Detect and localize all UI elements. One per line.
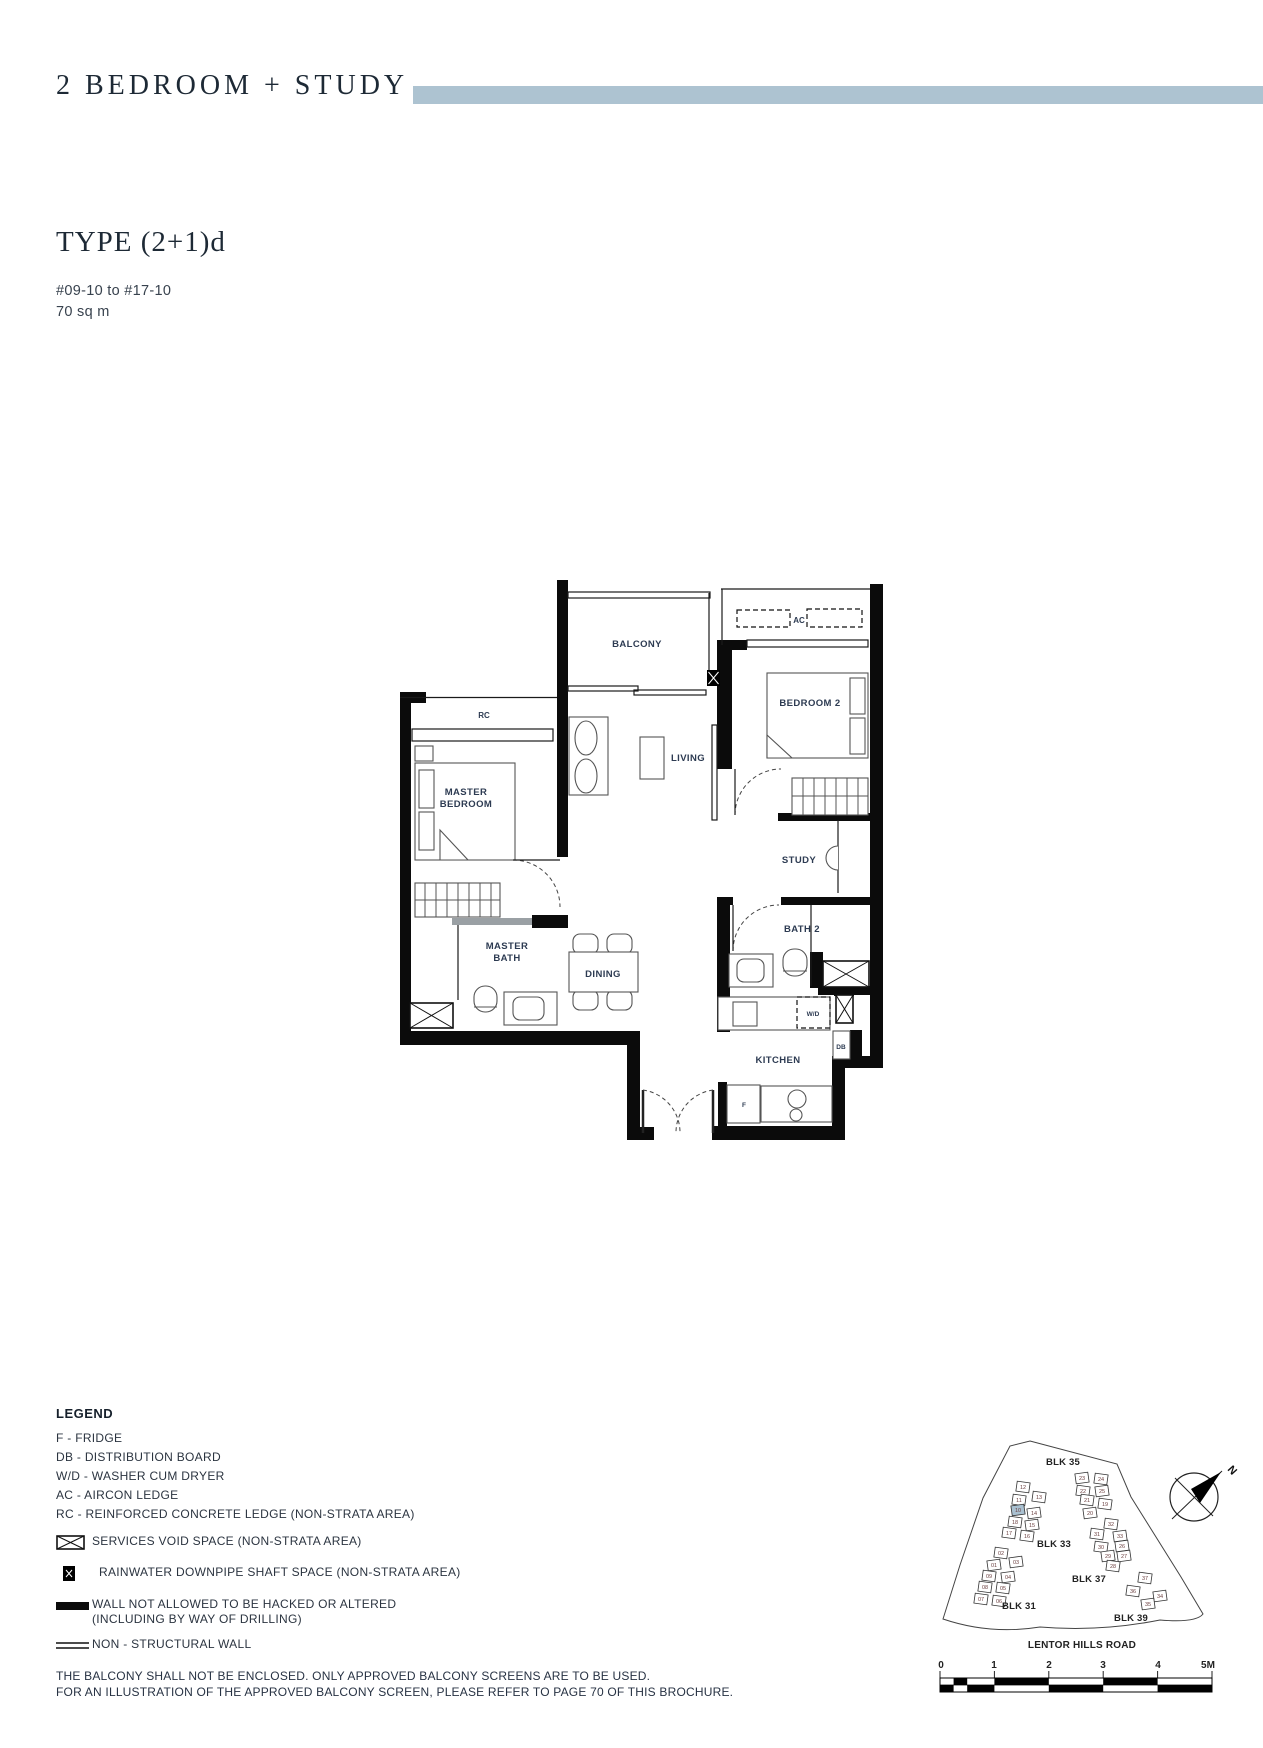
compass-north-label: N: [1225, 1464, 1239, 1478]
site-unit-number: 24: [1098, 1477, 1104, 1483]
site-plan: 1211131014181517160201030904080507062324…: [920, 1425, 1240, 1705]
site-unit-number: 17: [1006, 1531, 1012, 1537]
site-unit-number: 34: [1157, 1594, 1163, 1600]
site-unit-number: 03: [1013, 1560, 1019, 1566]
svg-text:4: 4: [1155, 1660, 1161, 1671]
room-label-study: STUDY: [782, 855, 816, 866]
room-label-bedroom2: BEDROOM 2: [779, 698, 840, 709]
dining-chair: [607, 934, 632, 954]
footer-line: FOR AN ILLUSTRATION OF THE APPROVED BALC…: [56, 1684, 733, 1700]
legend: LEGEND F - FRIDGE DB - DISTRIBUTION BOAR…: [56, 1406, 461, 1656]
site-unit-number: 29: [1105, 1554, 1111, 1560]
pocket-door: [452, 918, 532, 925]
unit-type-title: TYPE (2+1)d: [56, 226, 226, 259]
label-fridge: F: [742, 1102, 746, 1109]
non-structural-wall-icon: [56, 1638, 92, 1656]
toilet: [474, 986, 497, 1012]
site-unit-number: 26: [1119, 1544, 1125, 1550]
site-unit-number: 28: [1110, 1564, 1116, 1570]
site-unit-number: 35: [1145, 1602, 1151, 1608]
unit-range-text: #09-10 to #17-10: [56, 283, 171, 299]
site-unit-number: 30: [1098, 1545, 1104, 1551]
site-unit-number: 19: [1102, 1502, 1108, 1508]
site-unit-number: 31: [1094, 1532, 1100, 1538]
legend-item: DB - DISTRIBUTION BOARD: [56, 1448, 461, 1467]
site-unit-number: 08: [982, 1585, 988, 1591]
study-chair: [826, 846, 838, 870]
site-unit-number: 21: [1084, 1498, 1090, 1504]
site-unit-number: 07: [978, 1597, 984, 1603]
site-unit-number: 04: [1005, 1575, 1011, 1581]
site-unit-number: 18: [1012, 1520, 1018, 1526]
legend-item: RC - REINFORCED CONCRETE LEDGE (NON-STRA…: [56, 1505, 461, 1524]
kitchen-sink: [733, 1002, 757, 1026]
unit-area-text: 70 sq m: [56, 304, 110, 320]
rainwater-shaft-icon: [56, 1566, 99, 1587]
site-unit-number: 33: [1117, 1534, 1123, 1540]
room-label-kitchen: KITCHEN: [755, 1055, 800, 1066]
footer-line: THE BALCONY SHALL NOT BE ENCLOSED. ONLY …: [56, 1668, 733, 1684]
blk-37-label: BLK 37: [1072, 1574, 1106, 1585]
blk-35-label: BLK 35: [1046, 1457, 1080, 1468]
site-unit-number: 15: [1029, 1523, 1035, 1529]
burner: [790, 1109, 802, 1121]
site-unit-number: 02: [998, 1551, 1004, 1557]
svg-text:0: 0: [938, 1660, 944, 1671]
svg-text:2: 2: [1046, 1660, 1052, 1671]
room-label-bath2: BATH 2: [784, 924, 820, 935]
site-unit-number: 16: [1024, 1534, 1030, 1540]
svg-text:1: 1: [991, 1660, 997, 1671]
blk-39-label: BLK 39: [1114, 1613, 1148, 1624]
room-label-ac: AC: [793, 616, 805, 625]
title-accent-bar: [413, 86, 1263, 104]
svg-text:5M: 5M: [1201, 1660, 1215, 1671]
scale-bar: 0 1 2 3 4 5M: [938, 1660, 1215, 1692]
room-label-dining: DINING: [585, 969, 621, 980]
legend-item: W/D - WASHER CUM DRYER: [56, 1467, 461, 1486]
blk-33-label: BLK 33: [1037, 1539, 1071, 1550]
floor-plan: BALCONY RC AC MASTER BEDROOM LIVING BEDR…: [390, 560, 890, 1160]
legend-item: AC - AIRCON LEDGE: [56, 1486, 461, 1505]
legend-symbol-row: RAINWATER DOWNPIPE SHAFT SPACE (NON-STRA…: [56, 1565, 461, 1587]
svg-text:BEDROOM: BEDROOM: [440, 799, 492, 810]
legend-symbol-row: NON - STRUCTURAL WALL: [56, 1637, 461, 1656]
site-unit-number: 09: [986, 1574, 992, 1580]
dining-chair: [573, 934, 598, 954]
legend-heading: LEGEND: [56, 1406, 461, 1421]
label-wd: W/D: [807, 1011, 820, 1018]
room-label-master-bedroom: MASTER: [445, 787, 488, 798]
footer-notes: THE BALCONY SHALL NOT BE ENCLOSED. ONLY …: [56, 1668, 733, 1700]
site-unit-number: 05: [1000, 1586, 1006, 1592]
compass: N: [1170, 1464, 1239, 1521]
bedside-table: [415, 746, 433, 761]
dining-chair: [607, 990, 632, 1010]
brochure-page: 2 BEDROOM + STUDY TYPE (2+1)d #09-10 to …: [0, 0, 1263, 1748]
services-void-icon: [56, 1535, 92, 1555]
room-label-living: LIVING: [671, 753, 705, 764]
site-unit-number: 13: [1036, 1495, 1042, 1501]
site-unit-number: 14: [1031, 1511, 1037, 1517]
burner: [788, 1090, 806, 1108]
site-unit-number: 12: [1020, 1485, 1026, 1491]
site-unit-number: 10: [1015, 1508, 1021, 1514]
dining-chair: [573, 990, 598, 1010]
svg-text:BATH: BATH: [493, 953, 520, 964]
page-title: 2 BEDROOM + STUDY: [56, 70, 408, 102]
no-hack-wall-icon: [56, 1598, 92, 1616]
room-label-rc: RC: [478, 711, 490, 720]
room-label-master-bath: MASTER: [486, 941, 529, 952]
coffee-table: [640, 737, 664, 779]
legend-symbol-row: SERVICES VOID SPACE (NON-STRATA AREA): [56, 1534, 461, 1555]
toilet2: [783, 949, 807, 976]
site-unit-number: 32: [1108, 1522, 1114, 1528]
sink: [513, 997, 544, 1020]
site-unit-number: 23: [1079, 1476, 1085, 1482]
site-unit-number: 20: [1087, 1511, 1093, 1517]
legend-item: F - FRIDGE: [56, 1429, 461, 1448]
room-label-balcony: BALCONY: [612, 639, 662, 650]
road-label: LENTOR HILLS ROAD: [1028, 1640, 1136, 1651]
site-unit-number: 37: [1142, 1576, 1148, 1582]
doors: [513, 769, 781, 1134]
label-db: DB: [836, 1044, 846, 1051]
site-unit-number: 27: [1121, 1554, 1127, 1560]
sink2: [737, 959, 764, 982]
blk-31-label: BLK 31: [1002, 1601, 1036, 1612]
legend-symbol-row: WALL NOT ALLOWED TO BE HACKED OR ALTERED…: [56, 1597, 461, 1627]
svg-text:3: 3: [1100, 1660, 1106, 1671]
site-unit-number: 01: [991, 1563, 997, 1569]
site-unit-number: 11: [1016, 1498, 1022, 1504]
site-unit-number: 25: [1099, 1489, 1105, 1495]
site-unit-number: 36: [1130, 1589, 1136, 1595]
